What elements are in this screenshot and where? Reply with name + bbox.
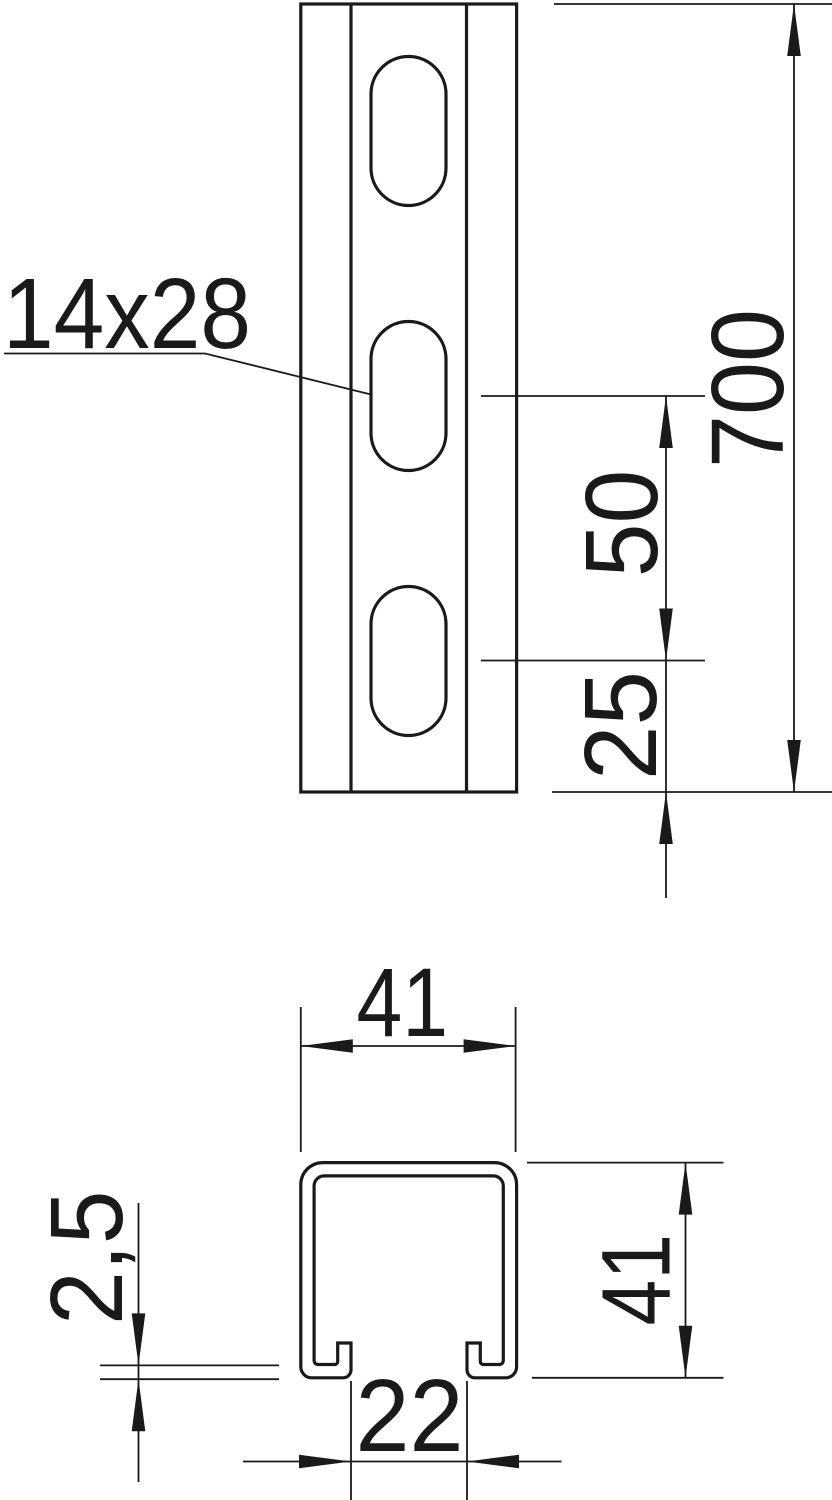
- svg-text:700: 700: [690, 309, 805, 468]
- svg-text:25: 25: [563, 671, 678, 780]
- svg-text:41: 41: [357, 948, 449, 1057]
- svg-text:50: 50: [564, 470, 679, 578]
- svg-text:41: 41: [581, 1234, 690, 1326]
- svg-text:22: 22: [356, 1358, 464, 1473]
- svg-text:14x28: 14x28: [3, 258, 251, 370]
- svg-text:2,5: 2,5: [29, 1190, 144, 1325]
